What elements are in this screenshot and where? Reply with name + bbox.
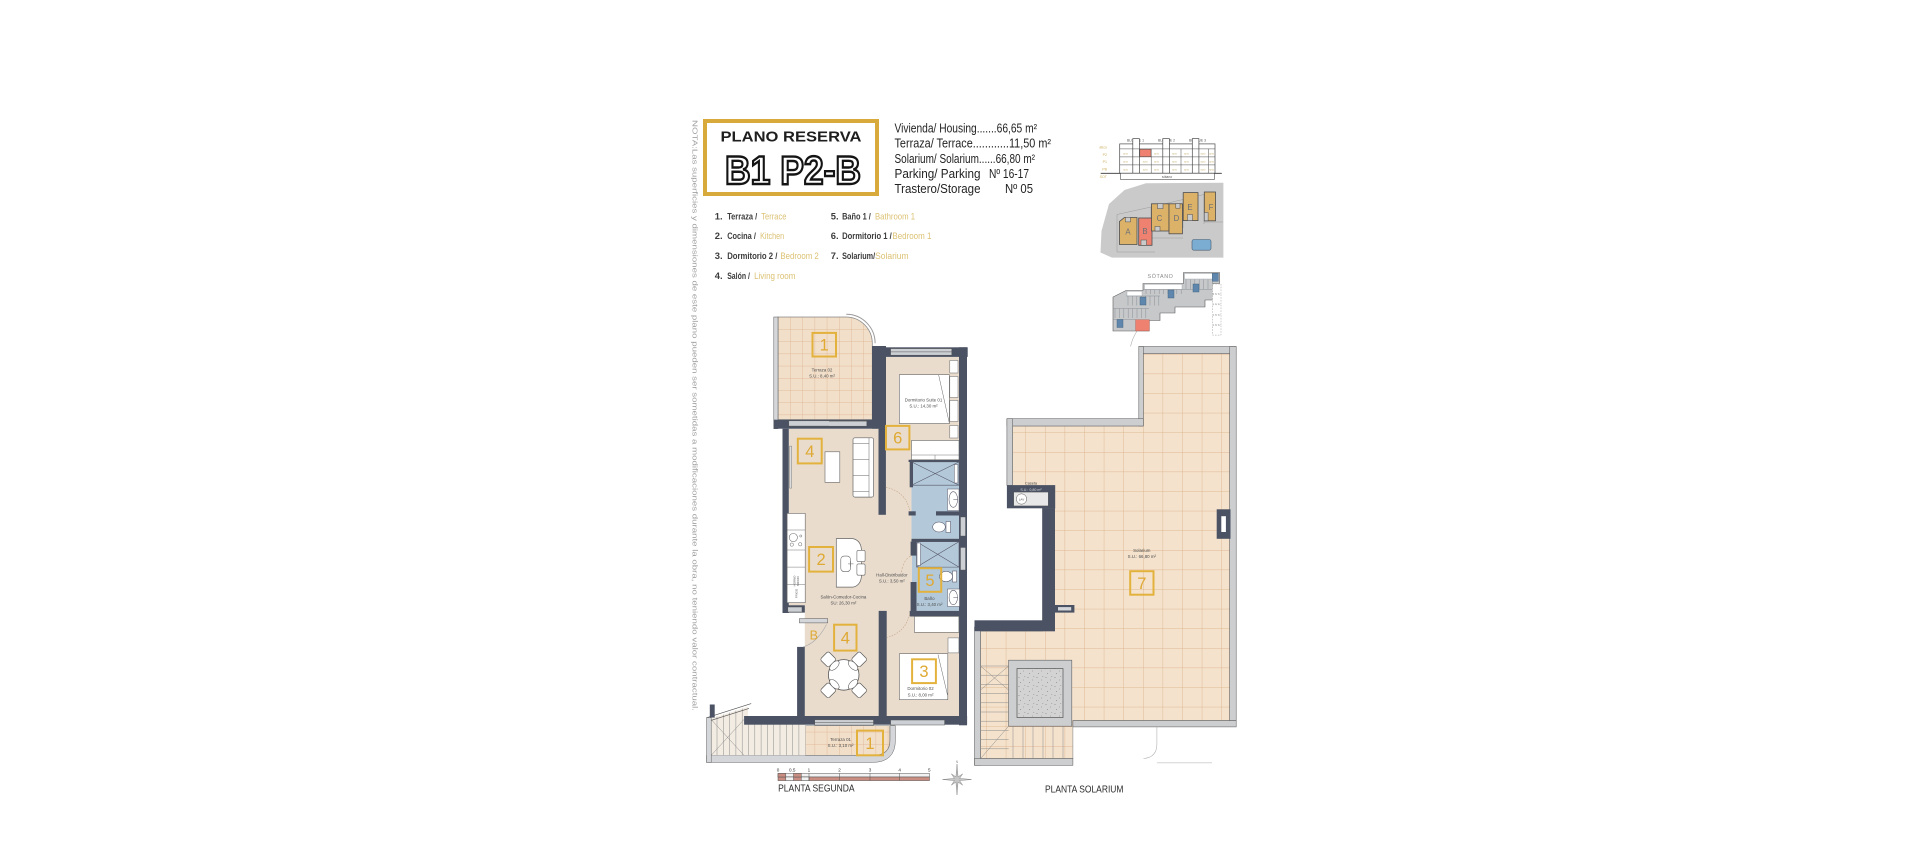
svg-text:Solarium: Solarium <box>1133 548 1151 553</box>
svg-text:3.: 3. <box>715 250 723 261</box>
svg-text:4: 4 <box>805 443 814 461</box>
svg-text:1: 1 <box>808 767 811 772</box>
svg-text:B1 P2-B: B1 P2-B <box>725 149 861 193</box>
svg-text:apto: apto <box>1172 159 1178 163</box>
svg-text:2.: 2. <box>715 230 723 241</box>
svg-text:Dormitorio 2 /: Dormitorio 2 / <box>727 250 778 261</box>
svg-text:4: 4 <box>898 767 901 772</box>
svg-text:Parking/ Parking: Parking/ Parking <box>895 167 981 181</box>
svg-text:SU: 26,30 m²: SU: 26,30 m² <box>830 601 856 606</box>
svg-text:Terraza/ Terrace............11: Terraza/ Terrace............11,50 m² <box>895 137 1052 151</box>
svg-text:PB: PB <box>1102 168 1107 172</box>
svg-text:apto: apto <box>1143 167 1149 171</box>
svg-text:Solarium/: Solarium/ <box>842 250 875 261</box>
svg-text:Terrace: Terrace <box>761 210 786 221</box>
svg-text:Hall-Distribuidor: Hall-Distribuidor <box>876 573 908 578</box>
svg-text:S.U.: 8,40 m²: S.U.: 8,40 m² <box>809 374 835 379</box>
svg-text:SOT: SOT <box>1100 175 1108 179</box>
svg-text:0.5: 0.5 <box>789 767 796 772</box>
svg-text:2: 2 <box>817 551 826 569</box>
svg-text:S.U.: 3,50 m²: S.U.: 3,50 m² <box>879 579 905 584</box>
svg-text:apto: apto <box>1200 159 1206 163</box>
svg-text:ático: ático <box>1099 145 1107 149</box>
svg-text:apto: apto <box>1209 167 1215 171</box>
svg-text:Nº 16-17: Nº 16-17 <box>989 167 1029 181</box>
svg-text:PLANTA SEGUNDA: PLANTA SEGUNDA <box>778 784 855 795</box>
svg-text:Dormitorio Suite 01: Dormitorio Suite 01 <box>905 398 943 403</box>
svg-text:Kitchen: Kitchen <box>760 230 784 241</box>
svg-text:5: 5 <box>925 572 934 590</box>
svg-text:Vivienda/ Housing.......66,65: Vivienda/ Housing.......66,65 m² <box>895 121 1038 135</box>
svg-text:LAV: LAV <box>1019 498 1024 502</box>
svg-text:Solarium: Solarium <box>875 250 909 261</box>
svg-text:Caseta: Caseta <box>1025 481 1038 485</box>
svg-text:apto: apto <box>1184 167 1190 171</box>
svg-text:apto: apto <box>1200 151 1206 155</box>
svg-text:NOTA:Las superficies y dimensi: NOTA:Las superficies y dimensiones de es… <box>691 120 700 711</box>
svg-text:apto: apto <box>1184 151 1190 155</box>
svg-text:Dormitorio 02: Dormitorio 02 <box>907 686 934 691</box>
svg-text:S.U.: 66,80 m²: S.U.: 66,80 m² <box>1128 554 1157 559</box>
svg-text:F: F <box>1209 203 1214 212</box>
svg-text:SÓTANO: SÓTANO <box>1148 273 1174 280</box>
svg-text:S.U.: 3,10 m²: S.U.: 3,10 m² <box>828 743 854 748</box>
svg-text:Nº 05: Nº 05 <box>1005 182 1033 196</box>
svg-text:B: B <box>810 629 818 643</box>
svg-text:S.U.: 14,30 m²: S.U.: 14,30 m² <box>909 404 938 409</box>
svg-text:3: 3 <box>869 767 872 772</box>
svg-text:apto: apto <box>1143 159 1149 163</box>
svg-text:6: 6 <box>893 429 902 447</box>
svg-text:PLANO RESERVA: PLANO RESERVA <box>721 129 862 146</box>
svg-text:Bathroom 1: Bathroom 1 <box>875 210 915 221</box>
svg-text:A: A <box>1125 228 1131 237</box>
svg-text:sótano: sótano <box>1162 175 1172 179</box>
svg-text:Terraza 02: Terraza 02 <box>812 368 833 373</box>
svg-text:S.U.: 0,80 m²: S.U.: 0,80 m² <box>1020 488 1042 492</box>
svg-text:C: C <box>1157 214 1163 223</box>
svg-text:0: 0 <box>777 767 780 772</box>
svg-text:1: 1 <box>865 735 874 753</box>
svg-text:E: E <box>1187 203 1192 212</box>
svg-text:Salón-Comedor-Cocina: Salón-Comedor-Cocina <box>820 595 866 600</box>
svg-text:3: 3 <box>919 663 928 681</box>
svg-text:P1: P1 <box>1103 160 1107 164</box>
svg-text:apto: apto <box>1123 151 1129 155</box>
svg-text:2: 2 <box>838 767 841 772</box>
svg-text:Living room: Living room <box>754 270 795 281</box>
svg-text:5: 5 <box>928 767 931 772</box>
svg-text:apto: apto <box>1172 151 1178 155</box>
svg-text:apto: apto <box>1154 151 1160 155</box>
svg-text:Bedroom 2: Bedroom 2 <box>780 250 818 261</box>
svg-text:S.U.: 3,40 m²: S.U.: 3,40 m² <box>917 602 943 607</box>
svg-text:Trastero/Storage: Trastero/Storage <box>895 182 981 196</box>
svg-text:Salón /: Salón / <box>727 270 750 281</box>
svg-text:apto: apto <box>1154 167 1160 171</box>
svg-text:Bedroom 1: Bedroom 1 <box>892 230 931 241</box>
svg-text:1.: 1. <box>715 210 723 221</box>
svg-text:apto: apto <box>1172 167 1178 171</box>
svg-text:1: 1 <box>820 337 829 355</box>
svg-text:Terraza 01: Terraza 01 <box>830 737 851 742</box>
svg-text:S.U.: 8,00 m²: S.U.: 8,00 m² <box>908 693 934 698</box>
svg-text:4.: 4. <box>715 270 723 281</box>
svg-text:Terraza /: Terraza / <box>727 210 757 221</box>
svg-text:D: D <box>1174 214 1180 223</box>
svg-text:apto: apto <box>1209 151 1215 155</box>
svg-text:apto: apto <box>1209 159 1215 163</box>
svg-text:7.: 7. <box>831 250 839 261</box>
svg-text:Dormitorio 1 /: Dormitorio 1 / <box>842 230 892 241</box>
svg-text:Cocina /: Cocina / <box>727 230 756 241</box>
svg-text:Baño: Baño <box>924 596 935 601</box>
svg-text:apto: apto <box>1200 167 1206 171</box>
svg-text:MICRO: MICRO <box>796 575 800 585</box>
svg-text:apto: apto <box>1123 159 1129 163</box>
svg-text:B: B <box>1142 227 1147 236</box>
svg-text:5.: 5. <box>831 210 839 221</box>
svg-text:apto: apto <box>1123 167 1129 171</box>
svg-text:FRIGO: FRIGO <box>794 588 798 598</box>
svg-text:PLANTA SOLARIUM: PLANTA SOLARIUM <box>1045 785 1124 796</box>
svg-text:Baño 1 /: Baño 1 / <box>842 210 871 221</box>
svg-text:4: 4 <box>841 630 850 648</box>
svg-text:6.: 6. <box>831 230 839 241</box>
svg-text:7: 7 <box>1137 575 1146 593</box>
svg-text:Solarium/ Solarium......66,80: Solarium/ Solarium......66,80 m² <box>895 152 1036 166</box>
svg-text:apto: apto <box>1184 159 1190 163</box>
svg-text:apto: apto <box>1154 159 1160 163</box>
svg-text:P2: P2 <box>1103 153 1107 157</box>
